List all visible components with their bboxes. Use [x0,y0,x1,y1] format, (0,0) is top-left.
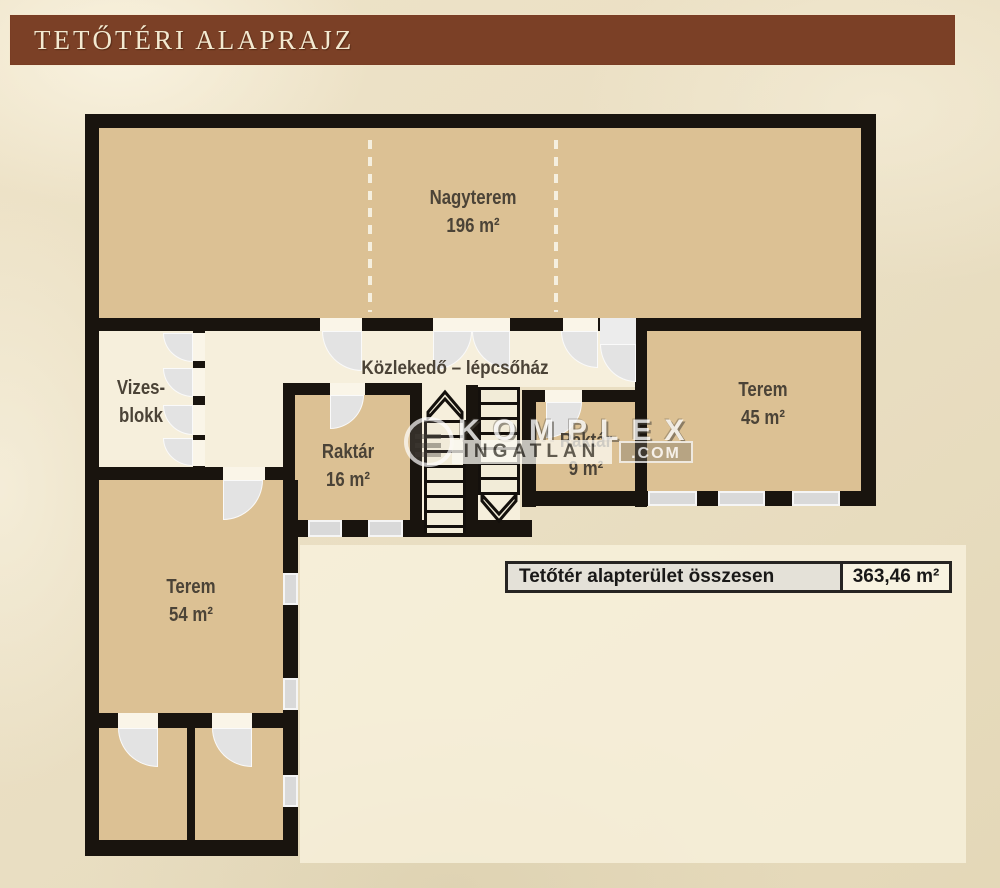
door-opening [433,318,510,331]
wall-bottom-rooms-divider [187,713,195,856]
room-name: Vizes- [110,374,172,402]
stair-down-arrow-icon [478,493,520,525]
wall-raktar9-top [522,390,647,402]
room-name: Terem [141,573,242,601]
door-opening [330,383,365,395]
door-opening [320,318,362,331]
summary-table-value: 363,46 m² [843,564,949,590]
door-opening [563,318,598,331]
wall-raktar16-right [410,383,422,537]
room-name: Közlekedő – lépcsőház [343,358,568,380]
door-opening [545,390,582,402]
window [283,678,298,710]
window [792,491,840,506]
window [718,491,765,506]
stair-up-arrow-icon [424,388,466,420]
room-label-terem54: Terem 54 m² [141,573,242,630]
room-label-terem45: Terem 45 m² [713,376,814,433]
door-opening [193,333,205,361]
wall-outer-left [85,114,99,856]
wall-raktar16-left [283,383,295,537]
door-opening [212,713,252,728]
corridor-label: Közlekedő – lépcsőház [343,358,568,380]
wall-stair-divider [466,385,478,520]
header-bar: TETŐTÉRI ALAPRAJZ [10,15,955,65]
room-label-raktar16: Raktár 16 m² [306,438,390,495]
staircase-down-treads [478,387,520,495]
window [368,520,403,537]
room-area: 45 m² [713,404,814,432]
room-area: 9 m² [547,455,624,483]
window [283,573,298,605]
door-opening [193,368,205,396]
wall-raktar9-left [522,390,536,507]
room-label-nagyterem: Nagyterem 196 m² [397,184,548,241]
window [283,775,298,807]
door-opening [223,467,265,480]
page-background: TETŐTÉRI ALAPRAJZ [0,0,1000,888]
room-name: Raktár [306,438,390,466]
window [648,491,697,506]
summary-table-label: Tetőtér alapterület összesen [508,564,843,590]
page-title: TETŐTÉRI ALAPRAJZ [11,25,354,56]
staircase-up-treads [424,420,466,533]
room-label-raktar9: Raktár 9 m² [547,427,624,484]
dashed-partition-line [368,140,372,312]
room-name: Terem [713,376,814,404]
door-opening [600,318,636,344]
summary-table: Tetőtér alapterület összesen 363,46 m² [505,561,952,593]
door-opening [193,405,205,435]
wall-outer-right [861,114,876,505]
door-opening [118,713,158,728]
room-name: Raktár [547,427,624,455]
dashed-partition-line [554,140,558,312]
room-name: blokk [110,402,172,430]
wall-outer-bottom [85,840,298,856]
wall-corridor-east [635,331,647,507]
room-name: Nagyterem [397,184,548,212]
room-area: 196 m² [397,212,548,240]
room-fill-corridor-pocket [205,331,283,467]
room-area: 54 m² [141,601,242,629]
door-opening [193,440,205,466]
wall-outer-top [88,114,876,128]
room-label-vizesblokk: Vizes- blokk [110,374,172,431]
window [308,520,342,537]
room-area: 16 m² [306,466,390,494]
